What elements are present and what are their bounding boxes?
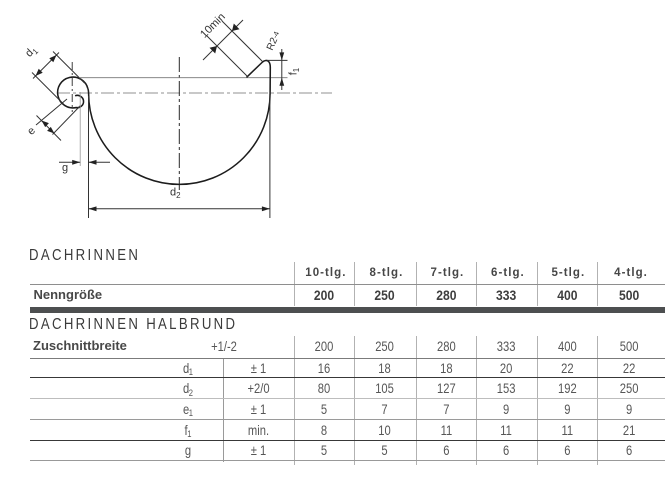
- svg-text:e: e: [25, 125, 38, 138]
- svg-text:R2-4: R2-4: [265, 30, 283, 52]
- svg-text:g: g: [62, 162, 68, 174]
- svg-text:10min: 10min: [198, 11, 228, 41]
- svg-text:f1: f1: [287, 67, 301, 75]
- svg-text:d1: d1: [23, 43, 40, 60]
